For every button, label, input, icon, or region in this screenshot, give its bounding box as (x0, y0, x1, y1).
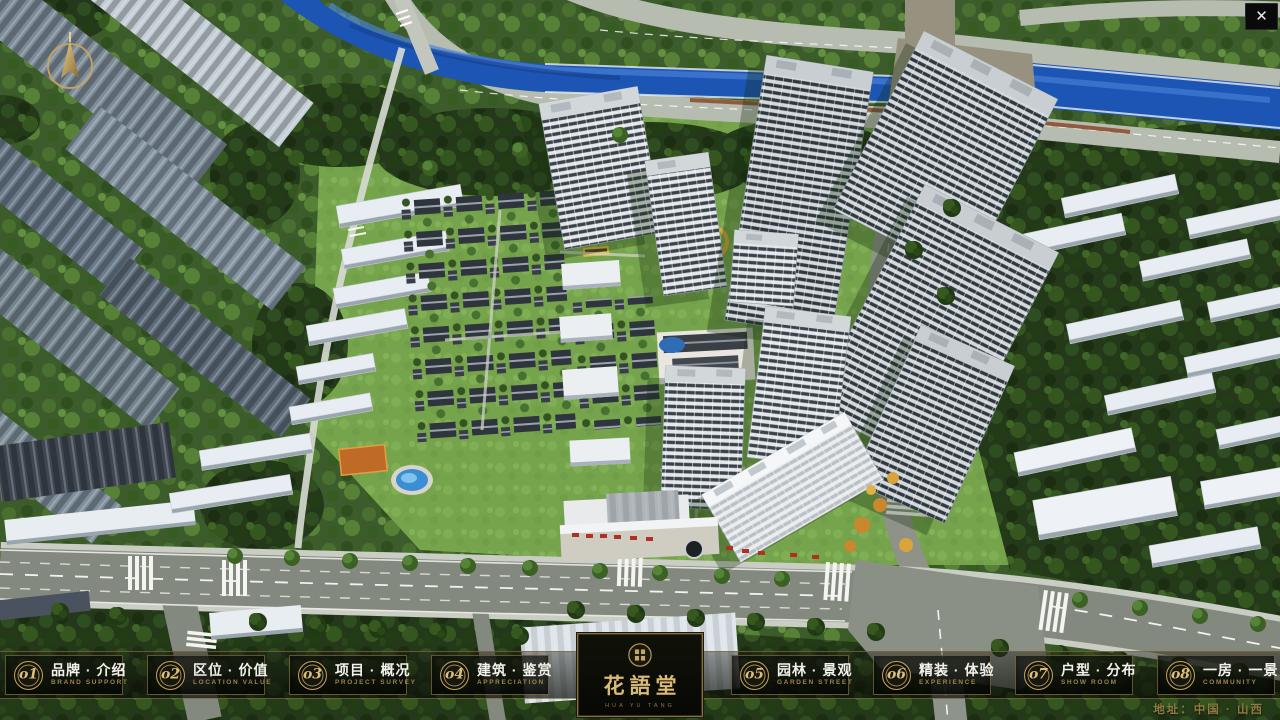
nav-item-label-cn: 户型 · 分布 (1061, 663, 1124, 677)
nav-item-label-cn: 品牌 · 介绍 (51, 663, 114, 677)
compass-icon (40, 28, 100, 98)
nav-item-label-cn: 项目 · 概况 (335, 663, 398, 677)
nav-item-label-en: PROJECT SURVEY (335, 680, 398, 687)
nav-item-label-en: COMMUNITY (1203, 680, 1266, 687)
brand-title: 花語堂 (599, 670, 682, 700)
nav-item-number-badge: o3 (298, 661, 327, 690)
nav-item-label-cn: 一房 · 一景 (1203, 663, 1266, 677)
nav-left-group: o1 品牌 · 介绍 BRAND SUPPORT o2 区位 · 价值 LOCA… (5, 655, 549, 695)
nav-item-label-en: EXPERIENCE (919, 680, 982, 687)
presentation-window: ✕ o1 品牌 · 介绍 BRAND SUPPORT o2 区位 · 价值 LO (0, 0, 1280, 720)
nav-item-label-en: BRAND SUPPORT (51, 680, 114, 687)
nav-item-label-en: LOCATION VALUE (193, 680, 256, 687)
nav-item-number-badge: o8 (1166, 661, 1195, 690)
nav-item-label-cn: 园林 · 景观 (777, 663, 840, 677)
nav-item-label-en: SHOW ROOM (1061, 680, 1124, 687)
nav-item-number-badge: o4 (440, 661, 469, 690)
nav-item[interactable]: o5 园林 · 景观 GARDEN STREET (731, 655, 849, 695)
address-text: 地址：中国 · 山西 (1153, 701, 1264, 717)
nav-item-number-badge: o1 (14, 661, 43, 690)
nav-item[interactable]: o6 精装 · 体验 EXPERIENCE (873, 655, 991, 695)
bottom-nav: o1 品牌 · 介绍 BRAND SUPPORT o2 区位 · 价值 LOCA… (0, 651, 1280, 699)
nav-item-label-cn: 区位 · 价值 (193, 663, 256, 677)
close-button[interactable]: ✕ (1245, 3, 1278, 30)
nav-item-number-badge: o5 (740, 661, 769, 690)
nav-item-number-badge: o2 (156, 661, 185, 690)
brand-subtitle: HUA YU TANG (605, 703, 675, 709)
nav-item-number-badge: o6 (882, 661, 911, 690)
nav-item[interactable]: o1 品牌 · 介绍 BRAND SUPPORT (5, 655, 123, 695)
nav-item[interactable]: o3 项目 · 概况 PROJECT SURVEY (289, 655, 407, 695)
nav-item-label-cn: 建筑 · 鉴赏 (477, 663, 540, 677)
nav-item-number-badge: o7 (1024, 661, 1053, 690)
nav-item[interactable]: o4 建筑 · 鉴赏 APPRECIATION (431, 655, 549, 695)
nav-item-label-en: APPRECIATION (477, 680, 540, 687)
nav-item[interactable]: o7 户型 · 分布 SHOW ROOM (1015, 655, 1133, 695)
masterplan-render (0, 0, 1280, 720)
brand-logo[interactable]: 花語堂 HUA YU TANG (577, 633, 703, 717)
nav-item-label-cn: 精装 · 体验 (919, 663, 982, 677)
nav-item[interactable]: o8 一房 · 一景 COMMUNITY (1157, 655, 1275, 695)
nav-item[interactable]: o2 区位 · 价值 LOCATION VALUE (147, 655, 265, 695)
nav-item-label-en: GARDEN STREET (777, 680, 840, 687)
nav-right-group: o5 园林 · 景观 GARDEN STREET o6 精装 · 体验 EXPE… (731, 655, 1275, 695)
brand-seal-icon (627, 642, 653, 668)
